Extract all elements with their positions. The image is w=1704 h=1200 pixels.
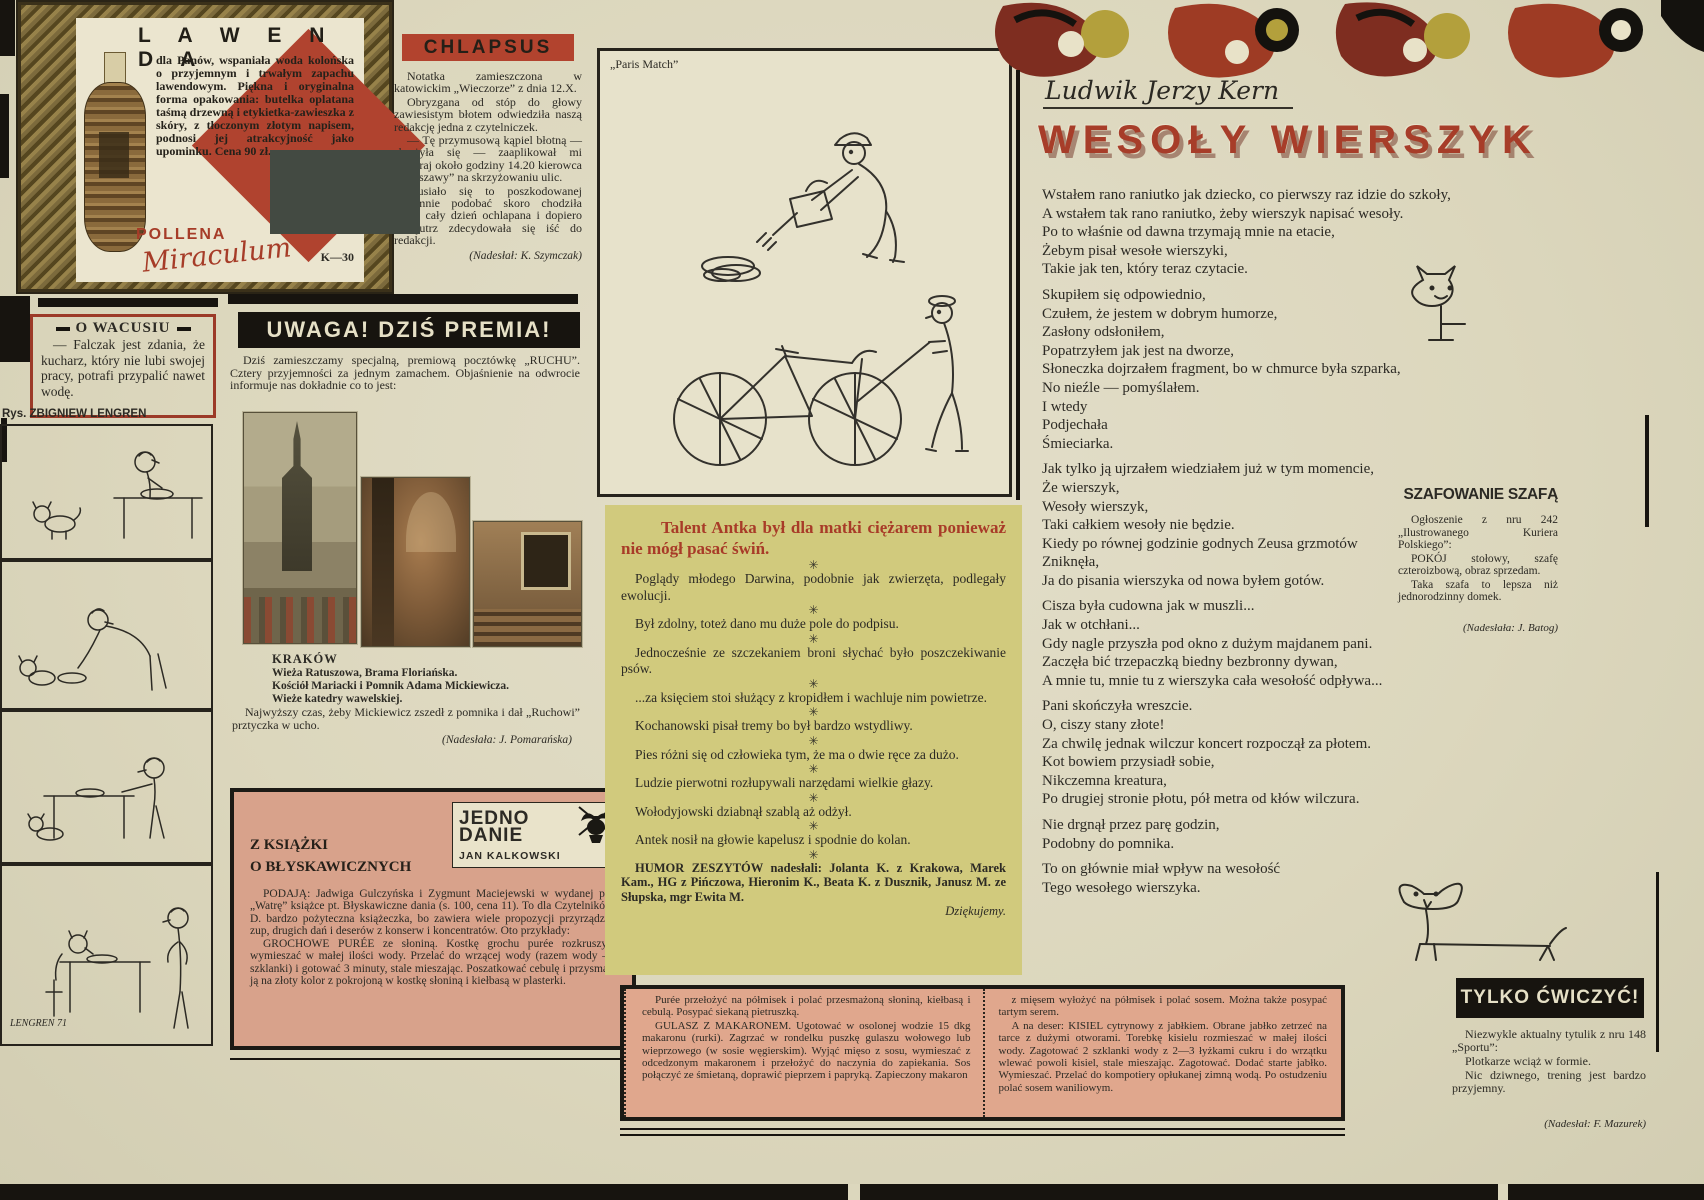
premia-intro: Dziś zamieszczamy specjalną, premiową po…: [230, 354, 580, 392]
szafowanie-paragraph: POKÓJ stołowy, szafę czteroizbową, obraz…: [1398, 553, 1558, 578]
humor-credits: HUMOR ZESZYTÓW nadesłali: Jolanta K. z K…: [621, 861, 1006, 905]
street-crowd: [244, 597, 356, 643]
column-rule-cwiczyc: [1656, 872, 1659, 1052]
premia-city: KRAKÓW: [272, 652, 582, 667]
recipe-paragraph: A na deser: KISIEL cytrynowy z jabłkiem.…: [999, 1020, 1328, 1094]
paris-match-cartoon-box: „Paris Match”: [597, 48, 1012, 497]
humor-item: Był zdolny, toteż dano mu duże pole do p…: [621, 616, 1006, 633]
jedno-danie-paragraph: PODAJĄ: Jadwiga Gulczyńska i Zygmunt Mac…: [250, 888, 624, 937]
rule-below-jedno: [230, 1058, 636, 1060]
szafowanie-paragraph: Ogłoszenie z nru 242 „Ilustrowanego Kuri…: [1398, 514, 1558, 552]
chlapsus-paragraph: — Tę przymusową kąpiel błotną — skarżyła…: [394, 134, 582, 184]
cartoon-man-pouring-and-man-with-bicycle: [600, 51, 1009, 494]
o-wacusiu-title: O WACUSIU: [76, 320, 171, 337]
szafowanie-title: SZAFOWANIE SZAFĄ: [1398, 486, 1558, 504]
jedno-danie-heading: Z KSIĄŻKI O BŁYSKAWICZNYCH: [250, 834, 411, 878]
humor-item: Poglądy młodego Darwina, podobnie jak zw…: [621, 571, 1006, 604]
heading-line-1: Z KSIĄŻKI: [250, 834, 411, 856]
heading-line-2: O BŁYSKAWICZNYCH: [250, 856, 411, 878]
chlapsus-paragraph: Notatka zamieszczona w katowickim „Wiecz…: [394, 70, 582, 95]
bottle-label: [99, 132, 129, 178]
logo-danie: DANIE: [459, 827, 529, 844]
chlapsus-section: CHLAPSUS Notatka zamieszczona w katowick…: [394, 34, 582, 262]
bottom-bar-notch: [848, 1184, 860, 1200]
dark-banner-shape: [270, 150, 420, 234]
recipe-right-column: z mięsem wyłożyć na półmisek i polać sos…: [983, 989, 1342, 1117]
premia-caption: KRAKÓW Wieża Ratuszowa, Brama Floriańska…: [272, 652, 582, 706]
rule-below-recipes-2: [620, 1134, 1345, 1136]
jedno-danie-logo: JEDNO DANIE JAN KALKOWSKI: [452, 802, 624, 868]
recipe-paragraph: GULASZ Z MAKARONEM. Ugotować w osolonej …: [642, 1020, 971, 1082]
title-dash: [177, 327, 191, 331]
jedno-danie-box: Z KSIĄŻKI O BŁYSKAWICZNYCH JEDNO DANIE J…: [230, 788, 636, 1050]
framed-painting: [521, 532, 571, 590]
poem-stanza: Wstałem rano raniutko jak dziecko, co pi…: [1042, 186, 1562, 279]
photo-church-interior: [361, 477, 470, 647]
humor-title: Talent Antka był dla matki ciężarem poni…: [621, 517, 1006, 559]
comic-art-cooking-man-and-dog: [2, 426, 211, 554]
poem-stanza: Pani skończyła wreszcie.O, ciszy stany z…: [1042, 697, 1562, 809]
logo-author: JAN KALKOWSKI: [459, 850, 617, 862]
humor-zeszytow-box: Talent Antka był dla matki ciężarem poni…: [605, 505, 1022, 975]
comic-panel-1: [0, 424, 213, 560]
page-edge-mark: [0, 94, 9, 178]
comic-panel-3: [0, 710, 213, 864]
abstract-art-banner: [985, 0, 1704, 78]
poem-stanza: Nie drgnął przez parę godzin,Podobny do …: [1042, 816, 1562, 853]
sitting-cat-doodle: [1405, 258, 1480, 353]
humor-item: Jednocześnie ze szczekaniem broni słycha…: [621, 645, 1006, 678]
separator-asterisk: ✳: [621, 707, 1006, 717]
premia-caption-lines: Wieża Ratuszowa, Brama Floriańska.Kośció…: [272, 667, 582, 706]
jedno-danie-paragraph: GROCHOWE PURÉE ze słoniną. Kostkę grochu…: [250, 938, 624, 987]
lengren-credit: Rys. ZBIGNIEW LENGREN: [2, 408, 146, 420]
lengren-signature: LENGREN 71: [10, 1018, 67, 1029]
magazine-page: L A W E N D A dla Panów, wspaniała woda …: [0, 0, 1704, 1200]
cwiczyc-paragraph: Nic dziwnego, trening jest bardzo przyje…: [1452, 1069, 1646, 1095]
chlapsus-credit: (Nadesłał: K. Szymczak): [394, 250, 582, 262]
separator-asterisk: ✳: [621, 679, 1006, 689]
jedno-danie-body: PODAJĄ: Jadwiga Gulczyńska i Zygmunt Mac…: [250, 888, 624, 988]
church-pews: [474, 609, 581, 646]
humor-item: ...za księciem stoi służący z kropidłem …: [621, 690, 1006, 707]
title-dash: [56, 327, 70, 331]
kern-author: Ludwik Jerzy Kern: [1043, 76, 1293, 109]
separator-asterisk: ✳: [621, 793, 1006, 803]
separator-asterisk: ✳: [621, 821, 1006, 831]
lawenda-body-text: dla Panów, wspaniała woda kolońska o prz…: [156, 54, 354, 158]
szafowanie-body: Ogłoszenie z nru 242 „Ilustrowanego Kuri…: [1398, 514, 1558, 605]
cwiczyc-paragraph: Niezwykle aktualny tytulik z nru 148 „Sp…: [1452, 1028, 1646, 1054]
rule-above-wacusiu: [38, 298, 218, 307]
chlapsus-paragraph: Musiało się to poszkodowanej ogromnie po…: [394, 185, 582, 247]
caption-line: Wieża Ratuszowa, Brama Floriańska.: [272, 667, 582, 680]
page-edge-mark: [0, 0, 15, 56]
separator-asterisk: ✳: [621, 736, 1006, 746]
comic-art-dog-eating-at-table: [2, 866, 211, 1040]
cwiczyc-credit: (Nadesłał: F. Mazurek): [1452, 1118, 1646, 1130]
poem-stanza: Skupiłem się odpowiednio,Czułem, że jest…: [1042, 286, 1562, 453]
recipe-left-column: Purée przełożyć na półmisek i polać prze…: [624, 989, 983, 1117]
humor-item: Pies różni się od człowieka tym, że ma o…: [621, 747, 1006, 764]
premia-banner: UWAGA! DZIŚ PREMIA!: [238, 312, 580, 348]
o-wacusiu-body: — Falczak jest zdania, że kucharz, który…: [41, 337, 205, 399]
poem-stanza: Cisza była cudowna jak w muszli...Jak w …: [1042, 597, 1562, 690]
interior-column: [372, 478, 394, 646]
recipe-box: Purée przełożyć na półmisek i polać prze…: [620, 985, 1345, 1121]
photo-cathedral-interior: [473, 521, 582, 647]
humor-item: Wołodyjowski dziabnął szablą aż odżył.: [621, 804, 1006, 821]
humor-item: Ludzie pierwotni rozłupywali narzędami w…: [621, 775, 1006, 792]
premia-note: Najwyższy czas, żeby Mickiewicz zszedł z…: [232, 706, 580, 731]
cwiczyc-banner: TYLKO ĆWICZYĆ!: [1456, 978, 1644, 1018]
cwiczyc-paragraph: Plotkarze wciąż w formie.: [1452, 1055, 1646, 1068]
szafowanie-credit: (Nadesłała: J. Batog): [1398, 622, 1558, 634]
separator-asterisk: ✳: [621, 764, 1006, 774]
comic-art-man-eating-dog-watching: [2, 712, 211, 858]
o-wacusiu-box: O WACUSIU — Falczak jest zdania, że kuch…: [30, 314, 216, 418]
caption-line: Kościół Mariacki i Pomnik Adama Mickiewi…: [272, 680, 582, 693]
comic-art-man-bending-with-bowl: [2, 562, 211, 704]
photo-town-hall-tower: [243, 412, 357, 644]
chlapsus-body: Notatka zamieszczona w katowickim „Wiecz…: [394, 70, 582, 247]
chlapsus-paragraph: Obryzgana od stóp do głowy zawiesistym b…: [394, 96, 582, 133]
separator-asterisk: ✳: [621, 850, 1006, 860]
cwiczyc-body: Niezwykle aktualny tytulik z nru 148 „Sp…: [1452, 1028, 1646, 1096]
recipe-paragraph: Purée przełożyć na półmisek i polać prze…: [642, 994, 971, 1019]
separator-asterisk: ✳: [621, 634, 1006, 644]
rule-below-recipes: [620, 1128, 1345, 1130]
interior-arch: [406, 492, 456, 552]
kern-title: WESOŁY WIERSZYK: [1038, 118, 1538, 163]
humor-item: Kochanowski pisał tremy bo był bardzo ws…: [621, 718, 1006, 735]
recipe-paragraph: z mięsem wyłożyć na półmisek i polać sos…: [999, 994, 1328, 1019]
column-rule: [1016, 70, 1020, 500]
humor-items: ✳Poglądy młodego Darwina, podobnie jak z…: [621, 560, 1006, 849]
separator-asterisk: ✳: [621, 605, 1006, 615]
long-cat-doodle: [1390, 876, 1605, 961]
column-rule-right: [1645, 415, 1649, 527]
page-edge-mark: [0, 296, 30, 362]
chlapsus-banner: CHLAPSUS: [402, 34, 574, 61]
separator-asterisk: ✳: [621, 560, 1006, 570]
humor-thanks: Dziękujemy.: [621, 904, 1006, 919]
humor-item: Antek nosił na głowie kapelusz i spodnie…: [621, 832, 1006, 849]
premia-credit: (Nadesłała: J. Pomarańska): [232, 734, 572, 746]
szafowanie-paragraph: Taka szafa to lepsza niż jednorodzinny d…: [1398, 579, 1558, 604]
lawenda-ad: L A W E N D A dla Panów, wspaniała woda …: [16, 0, 394, 294]
rule-above-premia: [228, 294, 578, 304]
bottom-bar-notch: [1498, 1184, 1508, 1200]
comic-panel-2: [0, 560, 213, 710]
tower-silhouette: [282, 421, 312, 571]
